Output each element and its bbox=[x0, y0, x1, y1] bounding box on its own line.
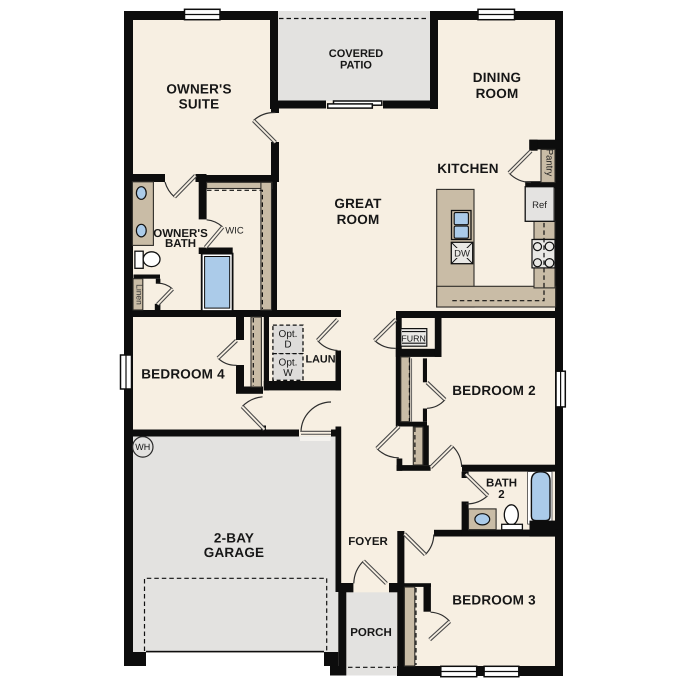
svg-text:PATIO: PATIO bbox=[340, 60, 372, 72]
svg-text:FURN: FURN bbox=[401, 333, 425, 343]
svg-text:OWNER'S: OWNER'S bbox=[166, 82, 231, 97]
svg-text:BEDROOM 2: BEDROOM 2 bbox=[452, 383, 536, 398]
svg-text:PORCH: PORCH bbox=[350, 627, 392, 639]
svg-text:DINING: DINING bbox=[473, 70, 521, 85]
svg-text:D: D bbox=[284, 340, 291, 351]
svg-text:Linen: Linen bbox=[134, 284, 144, 305]
svg-text:ROOM: ROOM bbox=[337, 212, 380, 227]
svg-text:ROOM: ROOM bbox=[476, 86, 519, 101]
svg-text:WIC: WIC bbox=[225, 226, 244, 237]
svg-text:BATH: BATH bbox=[486, 477, 517, 489]
svg-text:FOYER: FOYER bbox=[348, 536, 388, 548]
svg-text:2-BAY: 2-BAY bbox=[214, 531, 254, 546]
svg-text:W: W bbox=[283, 368, 293, 379]
svg-text:COVERED: COVERED bbox=[329, 48, 383, 60]
svg-text:SUITE: SUITE bbox=[179, 97, 220, 112]
svg-text:Opt.: Opt. bbox=[279, 358, 298, 369]
svg-text:Pantry: Pantry bbox=[544, 149, 555, 177]
svg-text:BEDROOM 4: BEDROOM 4 bbox=[141, 367, 225, 382]
svg-text:GARAGE: GARAGE bbox=[204, 545, 264, 560]
svg-text:LAUN: LAUN bbox=[306, 354, 336, 366]
svg-text:BATH: BATH bbox=[165, 238, 196, 250]
svg-text:WH: WH bbox=[135, 442, 150, 452]
svg-text:Opt.: Opt. bbox=[279, 329, 298, 340]
svg-text:Ref: Ref bbox=[532, 200, 547, 211]
svg-text:KITCHEN: KITCHEN bbox=[437, 161, 498, 176]
svg-text:2: 2 bbox=[498, 489, 504, 501]
svg-text:GREAT: GREAT bbox=[334, 196, 382, 211]
svg-text:DW: DW bbox=[454, 249, 470, 260]
svg-text:BEDROOM 3: BEDROOM 3 bbox=[452, 593, 536, 608]
